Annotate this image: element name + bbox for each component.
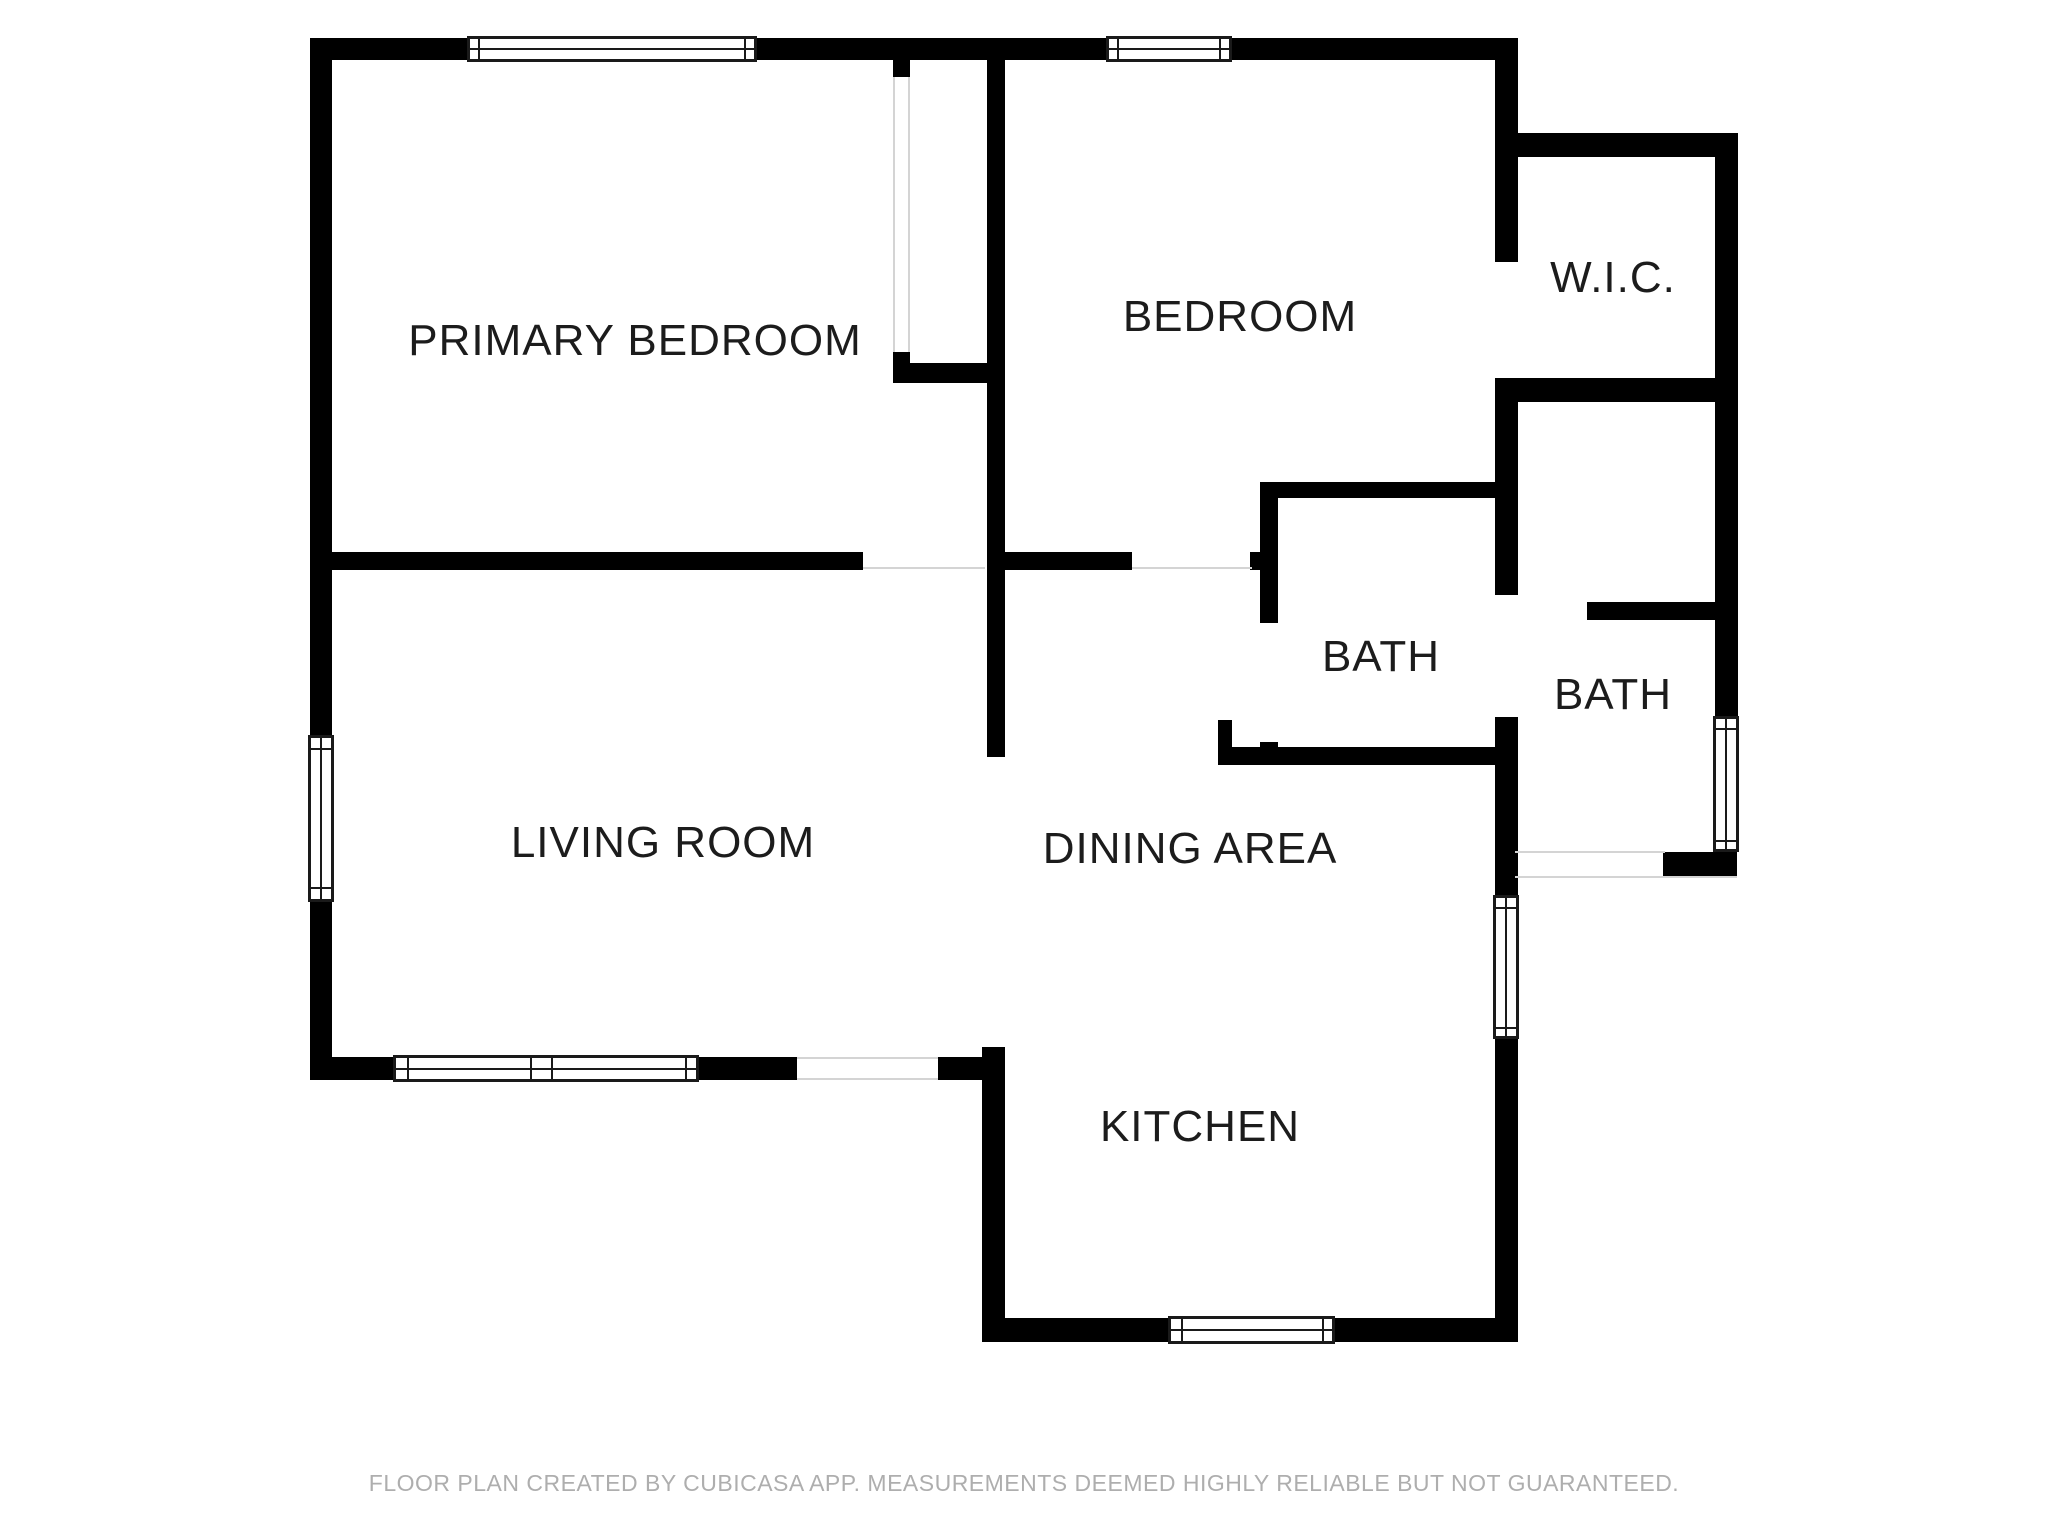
wall-exterior-left <box>310 38 332 1080</box>
window-living-south-centerline <box>396 1068 696 1070</box>
room-label-kitchen: KITCHEN <box>1100 1102 1300 1152</box>
wall-bath-outer-south <box>1663 852 1737 877</box>
wall-east-mid <box>1495 378 1518 595</box>
window-primary-north-centerline <box>470 48 754 50</box>
window-living-south-mullion <box>685 1058 687 1079</box>
window-primary-north-mullion <box>478 39 480 59</box>
door-wic <box>1495 262 1518 378</box>
wall-divider-west <box>332 552 863 570</box>
opening-closet <box>895 77 908 352</box>
window-kitchen-east <box>1493 895 1519 1039</box>
window-kitchen-south-mullion <box>1181 1319 1183 1341</box>
wall-bath-outer-east <box>1715 402 1738 718</box>
window-living-west-mullion <box>311 748 331 750</box>
door-living-south <box>797 1059 938 1078</box>
window-bedroom-north-mullion <box>1117 39 1119 59</box>
window-primary-north-mullion <box>744 39 746 59</box>
window-living-west <box>308 735 334 902</box>
window-primary-north <box>467 36 757 62</box>
room-label-bath-inner: BATH <box>1322 632 1440 682</box>
line-living-door-top <box>797 1057 938 1059</box>
window-kitchen-east-centerline <box>1505 898 1507 1036</box>
window-kitchen-south-centerline <box>1171 1329 1332 1331</box>
door-rear <box>1518 853 1663 875</box>
floor-plan: PRIMARY BEDROOMBEDROOMW.I.C.BATHBATHLIVI… <box>0 0 2048 1536</box>
room-label-bath-outer: BATH <box>1554 670 1672 720</box>
door-bath-outer <box>1495 595 1518 717</box>
window-living-south <box>393 1055 699 1082</box>
window-living-south-mullion <box>530 1058 532 1079</box>
window-kitchen-south <box>1168 1316 1335 1344</box>
window-bath-east-mullion <box>1716 728 1736 730</box>
line-closet-opening-left <box>893 77 895 352</box>
window-bath-east <box>1713 716 1739 852</box>
window-living-west-mullion <box>311 887 331 889</box>
window-bedroom-north <box>1106 36 1232 62</box>
wall-closet-stub-top <box>893 60 910 77</box>
window-kitchen-east-mullion <box>1496 907 1516 909</box>
wall-bath-outer-interior <box>1587 602 1737 620</box>
window-bath-east-centerline <box>1725 719 1727 849</box>
line-living-door-bottom <box>797 1078 938 1080</box>
wall-wic-south <box>1497 378 1715 402</box>
window-bath-east-mullion <box>1716 840 1736 842</box>
line-rear-opening-top <box>1515 851 1665 853</box>
window-living-south-mullion <box>551 1058 553 1079</box>
room-label-primary-bedroom: PRIMARY BEDROOM <box>408 316 861 366</box>
footer-disclaimer: FLOOR PLAN CREATED BY CUBICASA APP. MEAS… <box>369 1470 1679 1497</box>
wall-wic-north <box>1497 133 1738 157</box>
wall-closet-south <box>893 363 1005 383</box>
wall-wic-east <box>1715 133 1738 402</box>
door-bath-inner <box>1260 623 1278 742</box>
window-kitchen-south-mullion <box>1322 1319 1324 1341</box>
window-living-west-centerline <box>320 738 322 899</box>
line-closet-opening-right <box>908 77 910 352</box>
window-bedroom-north-mullion <box>1219 39 1221 59</box>
room-label-bedroom: BEDROOM <box>1123 292 1357 342</box>
wall-middle-vertical <box>987 38 1005 757</box>
room-label-dining-area: DINING AREA <box>1043 824 1338 874</box>
wall-bath-inner-north <box>1260 482 1497 498</box>
wall-divider-east <box>1005 552 1132 570</box>
wall-bath-inner-doorstop <box>1218 720 1232 747</box>
room-label-wic: W.I.C. <box>1550 253 1676 303</box>
wall-kitchen-west <box>982 1047 1005 1342</box>
window-bedroom-north-centerline <box>1109 48 1229 50</box>
window-kitchen-east-mullion <box>1496 1027 1516 1029</box>
room-label-living-room: LIVING ROOM <box>511 818 815 868</box>
wall-bath-inner-south <box>1218 747 1497 765</box>
line-bedroom-door-plane <box>1132 567 1252 569</box>
window-living-south-mullion <box>407 1058 409 1079</box>
line-rear-opening-bottom <box>1515 876 1737 878</box>
line-primary-door-plane <box>863 567 985 569</box>
wall-bath-inner-west-upper <box>1260 482 1278 623</box>
